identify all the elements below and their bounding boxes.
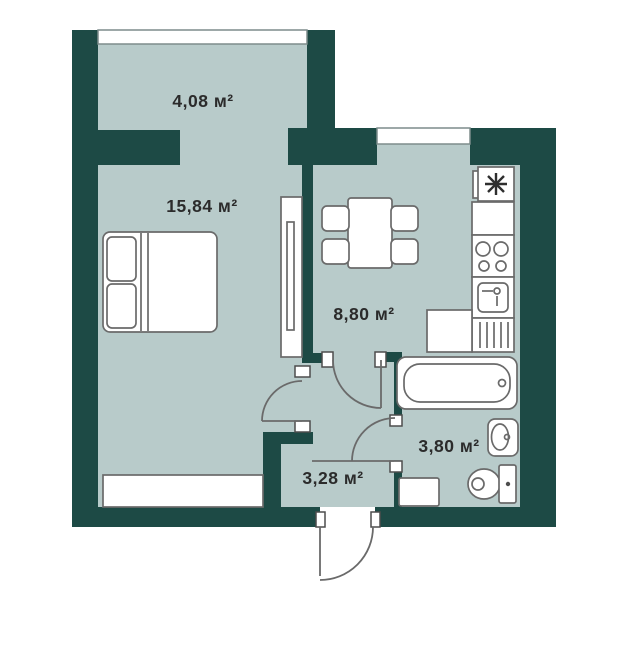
bedroom-door-jamb-top [295, 366, 310, 377]
bedroom-door-jamb-bottom [295, 421, 310, 432]
chair-bottom-right [391, 239, 418, 264]
bathroom-door-jamb-bottom [390, 461, 402, 472]
wall-left [72, 30, 98, 527]
wall-bedroom-kitchen [302, 128, 313, 363]
wardrobe-door-line [287, 222, 294, 330]
dresser [103, 475, 263, 507]
kitchen-window [377, 128, 470, 144]
wall-bottom-right [375, 507, 556, 527]
bedroom-area-label: 15,84 м² [166, 196, 237, 216]
chair-top-right [391, 206, 418, 231]
fridge-snowflake-icon [485, 173, 507, 195]
entrance-door-arc [320, 527, 373, 580]
chair-top-left [322, 206, 349, 231]
chair-bottom-left [322, 239, 349, 264]
balcony-area-label: 4,08 м² [172, 91, 233, 111]
wall-right [520, 128, 556, 527]
wall-hall-step-vertical [263, 432, 281, 507]
bathroom-door-jamb-top [390, 415, 402, 426]
hallway-area-label: 3,28 м² [302, 468, 363, 488]
floor-plan-canvas: 4,08 м² 15,84 м² 8,80 м² 3,28 м² 3,80 м² [0, 0, 639, 670]
kitchen-door-jamb-left [322, 352, 333, 367]
wall-bottom-left [72, 507, 320, 527]
toilet-flush-button [506, 482, 510, 486]
entrance-door-jamb-right [371, 512, 380, 527]
kitchen-area-label: 8,80 м² [333, 304, 394, 324]
wall-balcony-divider-left [98, 130, 180, 165]
stove [472, 235, 514, 277]
floor-plan: 4,08 м² 15,84 м² 8,80 м² 3,28 м² 3,80 м² [0, 0, 639, 670]
kitchen-counter [472, 202, 514, 235]
counter-extension [427, 310, 472, 352]
washing-machine [399, 478, 439, 506]
wall-balcony-right [307, 30, 335, 133]
wall-kitchen-top-left [288, 128, 377, 165]
dining-table [348, 198, 392, 268]
bed-pillow-top [107, 237, 136, 281]
bed-pillow-bottom [107, 284, 136, 328]
entrance-door-jamb-left [316, 512, 325, 527]
balcony-window [98, 30, 307, 44]
bathroom-area-label: 3,80 м² [418, 436, 479, 456]
